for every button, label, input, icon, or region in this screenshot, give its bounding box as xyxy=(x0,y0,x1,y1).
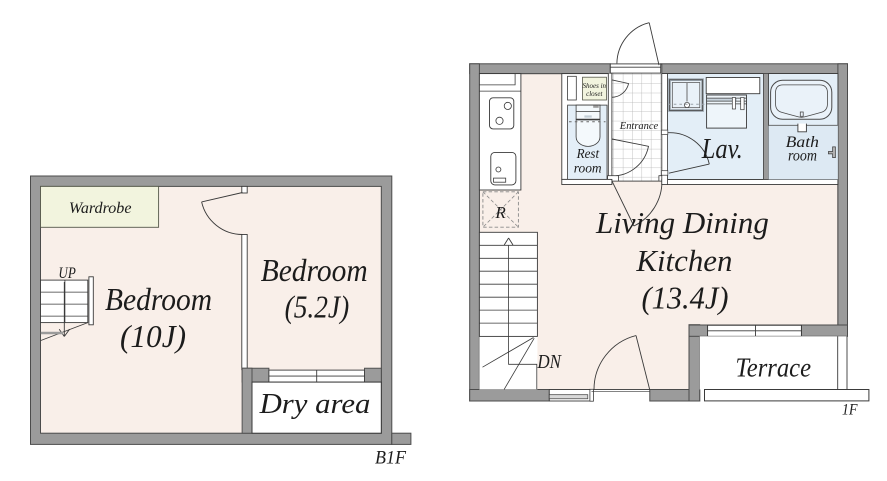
svg-text:room: room xyxy=(574,161,602,176)
svg-text:B1F: B1F xyxy=(375,448,406,469)
svg-text:Bedroom: Bedroom xyxy=(105,281,212,317)
svg-text:R: R xyxy=(494,203,506,222)
svg-text:(13.4J): (13.4J) xyxy=(642,280,729,316)
svg-text:(10J): (10J) xyxy=(120,318,186,354)
svg-text:(5.2J): (5.2J) xyxy=(285,289,350,325)
svg-text:room: room xyxy=(788,147,817,164)
svg-text:closet: closet xyxy=(586,90,603,98)
svg-text:Living Dining: Living Dining xyxy=(595,205,769,240)
svg-text:Wardrobe: Wardrobe xyxy=(69,200,132,217)
svg-text:Rest: Rest xyxy=(576,147,600,162)
svg-text:Lav.: Lav. xyxy=(701,134,743,165)
svg-text:Kitchen: Kitchen xyxy=(635,243,732,278)
svg-text:Entrance: Entrance xyxy=(619,120,658,132)
svg-text:UP: UP xyxy=(58,265,76,282)
svg-text:Bedroom: Bedroom xyxy=(261,252,368,288)
svg-text:Shoes in: Shoes in xyxy=(583,82,607,90)
svg-text:Dry area: Dry area xyxy=(259,389,371,420)
svg-text:DN: DN xyxy=(537,351,563,373)
svg-text:Terrace: Terrace xyxy=(735,353,811,383)
svg-text:1F: 1F xyxy=(842,402,858,419)
